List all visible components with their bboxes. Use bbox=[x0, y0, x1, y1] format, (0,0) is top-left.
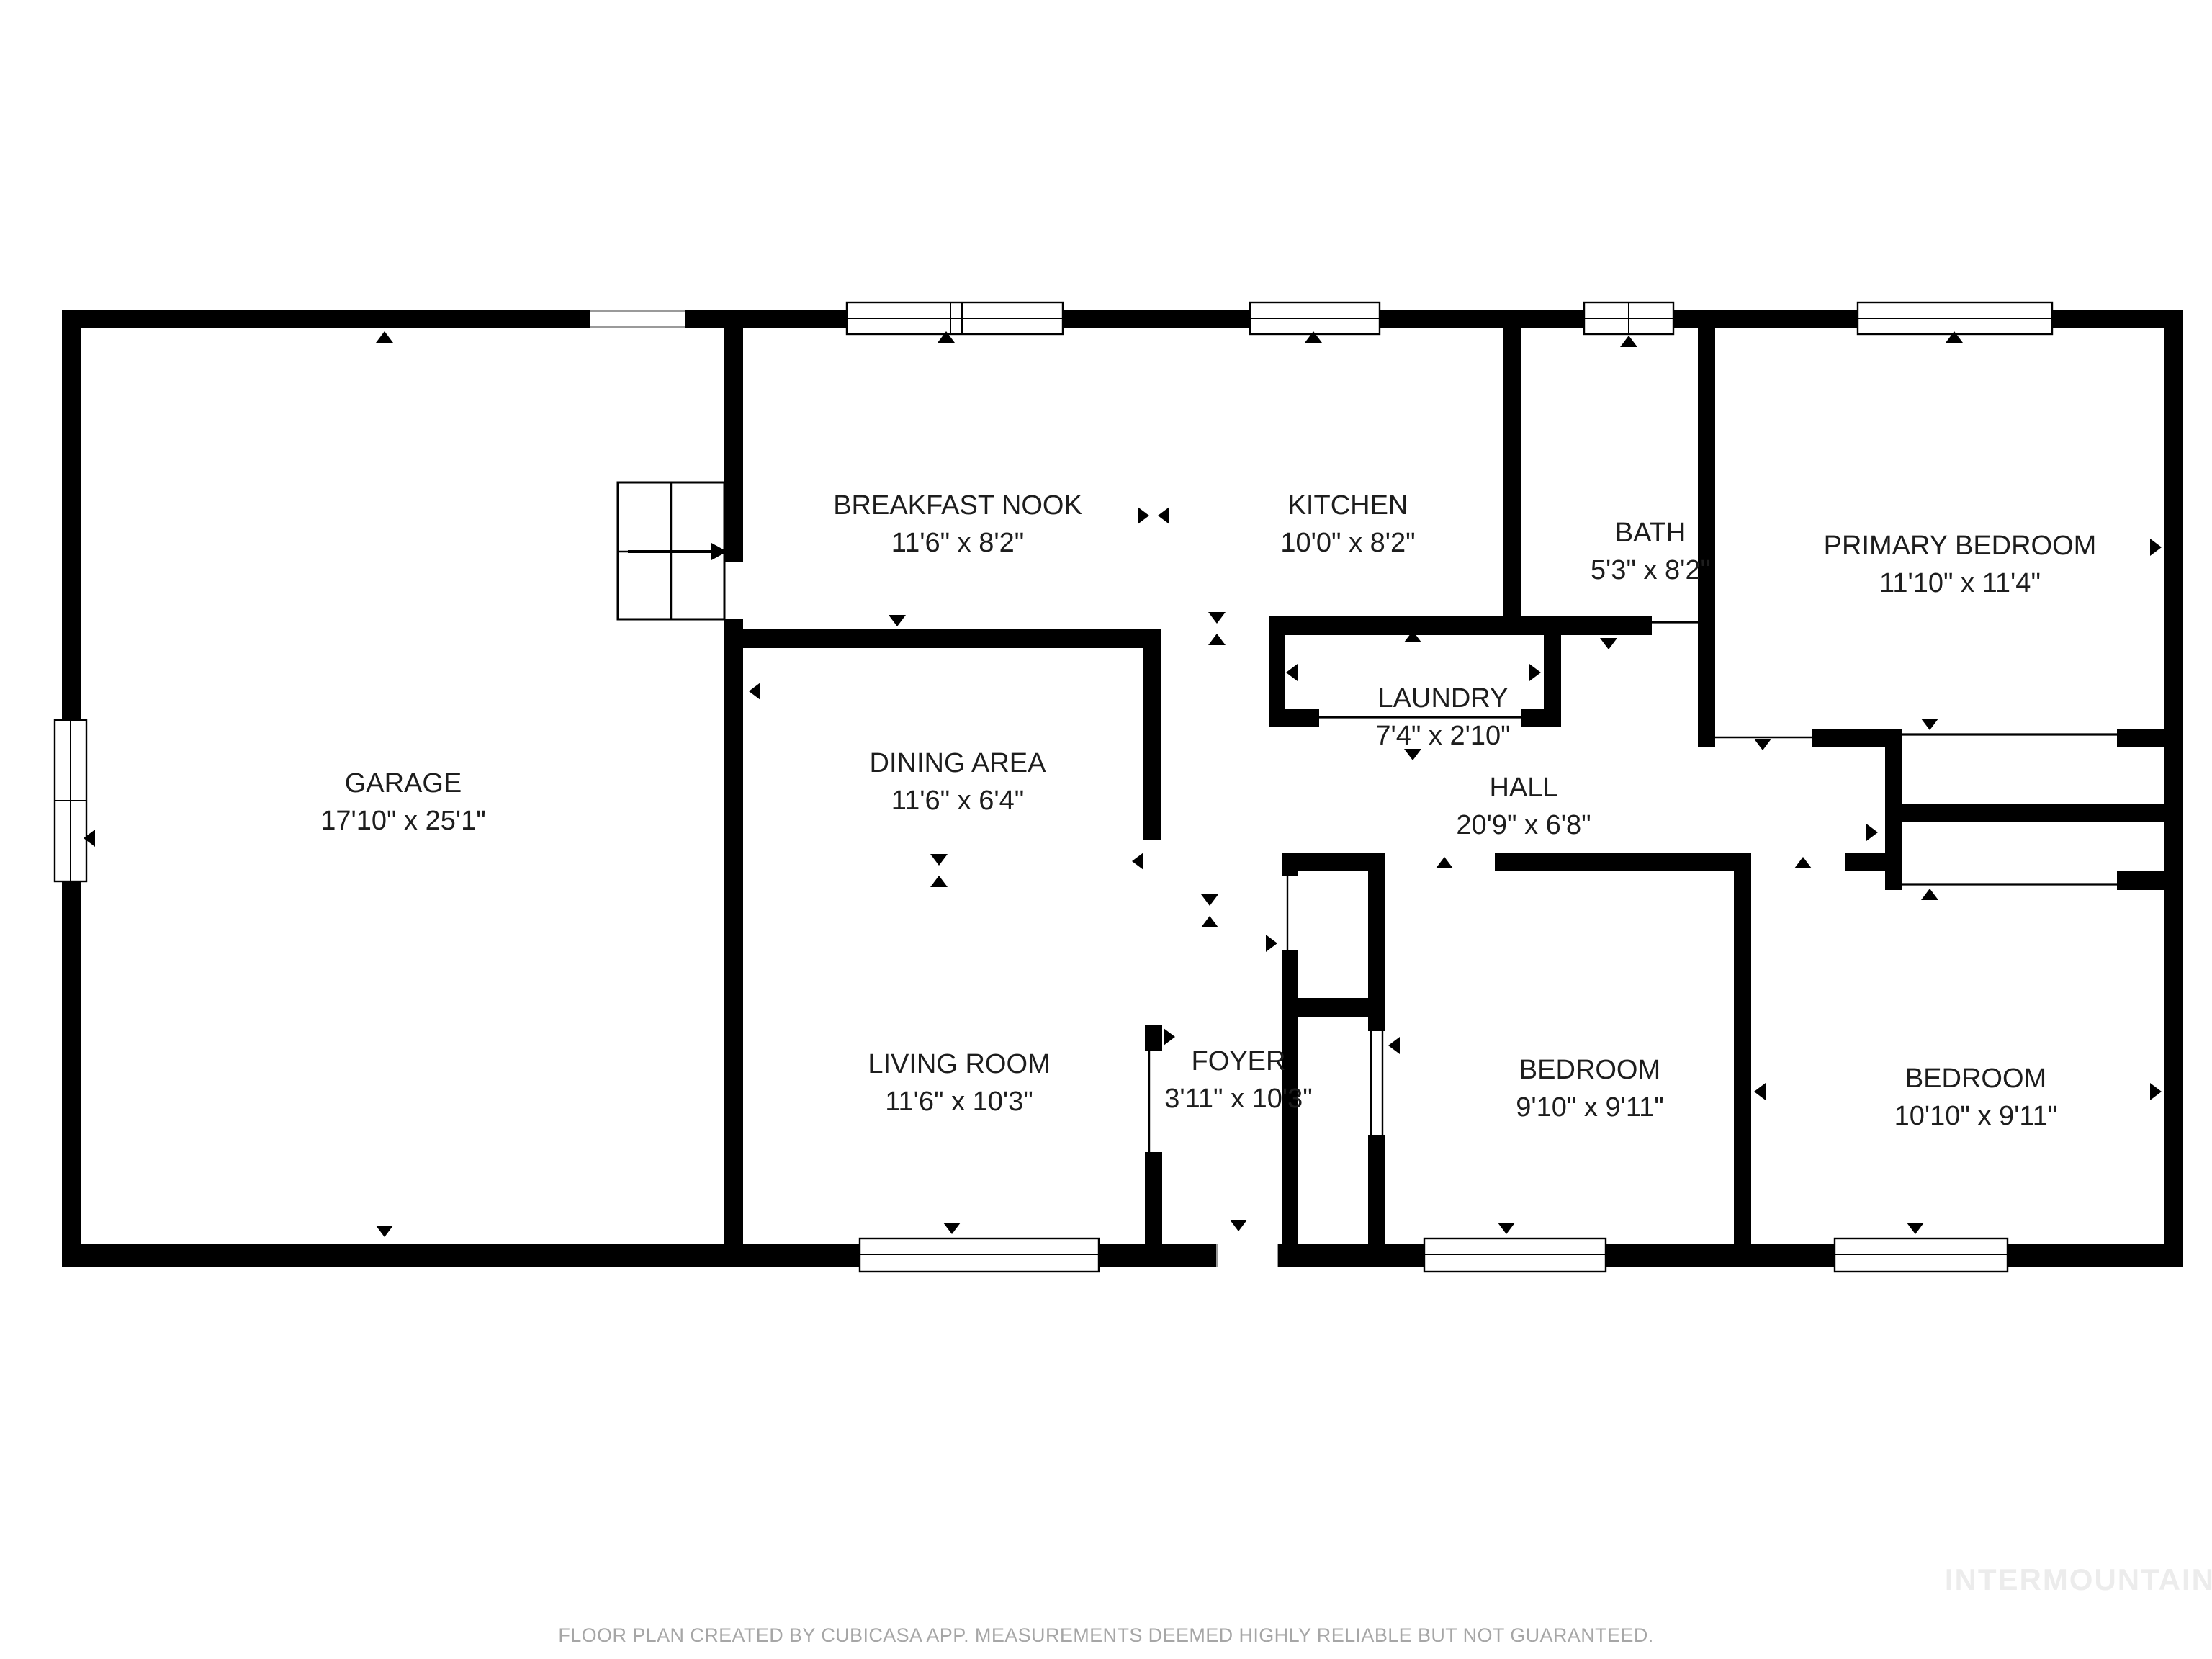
room-dimensions: 10'0" x 8'2" bbox=[1280, 526, 1415, 563]
room-dimensions: 9'10" x 9'11" bbox=[1516, 1090, 1664, 1128]
room-name: HALL bbox=[1456, 770, 1591, 808]
room-dimensions: 17'10" x 25'1" bbox=[320, 804, 486, 841]
room-name: BREAKFAST NOOK bbox=[833, 488, 1082, 526]
room-name: BEDROOM bbox=[1894, 1061, 2058, 1099]
room-label-primary-bedroom: PRIMARY BEDROOM 11'10" x 11'4" bbox=[1824, 529, 2097, 603]
room-name: LIVING ROOM bbox=[868, 1047, 1050, 1084]
floor-plan-page: GARAGE 17'10" x 25'1" BREAKFAST NOOK 11'… bbox=[0, 0, 2212, 1659]
room-dimensions: 3'11" x 10'3" bbox=[1164, 1082, 1313, 1119]
room-name: BEDROOM bbox=[1516, 1053, 1664, 1090]
room-label-bedroom-1: BEDROOM 9'10" x 9'11" bbox=[1516, 1053, 1664, 1128]
room-label-living-room: LIVING ROOM 11'6" x 10'3" bbox=[868, 1047, 1050, 1122]
room-name: LAUNDRY bbox=[1375, 681, 1510, 719]
room-dimensions: 11'6" x 6'4" bbox=[870, 783, 1046, 821]
room-dimensions: 11'10" x 11'4" bbox=[1824, 566, 2097, 603]
room-dimensions: 20'9" x 6'8" bbox=[1456, 808, 1591, 845]
room-label-foyer: FOYER 3'11" x 10'3" bbox=[1164, 1044, 1313, 1119]
room-label-hall: HALL 20'9" x 6'8" bbox=[1456, 770, 1591, 845]
room-name: GARAGE bbox=[320, 766, 486, 804]
room-name: KITCHEN bbox=[1280, 488, 1415, 526]
room-label-bath: BATH 5'3" x 8'2" bbox=[1591, 516, 1710, 590]
room-name: BATH bbox=[1591, 516, 1710, 553]
room-name: PRIMARY BEDROOM bbox=[1824, 529, 2097, 566]
room-label-dining-area: DINING AREA 11'6" x 6'4" bbox=[870, 746, 1046, 821]
stairs-icon bbox=[618, 482, 727, 619]
room-label-laundry: LAUNDRY 7'4" x 2'10" bbox=[1375, 681, 1510, 756]
room-dimensions: 11'6" x 8'2" bbox=[833, 526, 1082, 563]
room-label-breakfast-nook: BREAKFAST NOOK 11'6" x 8'2" bbox=[833, 488, 1082, 563]
room-label-kitchen: KITCHEN 10'0" x 8'2" bbox=[1280, 488, 1415, 563]
room-dimensions: 10'10" x 9'11" bbox=[1894, 1099, 2058, 1136]
room-dimensions: 5'3" x 8'2" bbox=[1591, 553, 1710, 590]
room-name: FOYER bbox=[1164, 1044, 1313, 1082]
watermark-text: INTERMOUNTAIN bbox=[1945, 1564, 2212, 1599]
room-dimensions: 7'4" x 2'10" bbox=[1375, 719, 1510, 756]
room-name: DINING AREA bbox=[870, 746, 1046, 783]
room-dimensions: 11'6" x 10'3" bbox=[868, 1084, 1050, 1122]
room-label-garage: GARAGE 17'10" x 25'1" bbox=[320, 766, 486, 841]
footer-disclaimer: FLOOR PLAN CREATED BY CUBICASA APP. MEAS… bbox=[0, 1624, 2212, 1646]
room-label-bedroom-2: BEDROOM 10'10" x 9'11" bbox=[1894, 1061, 2058, 1136]
